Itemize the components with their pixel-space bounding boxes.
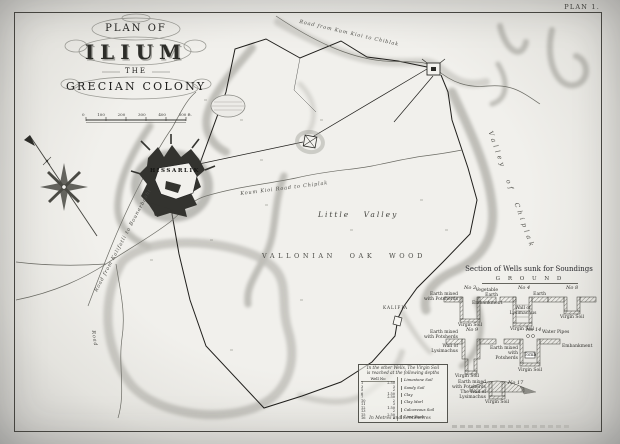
well-8-earth: Earth [524,292,546,297]
well-17-virgin-soil: Virgin Soil [482,400,512,405]
soil-type: Limestone Soil [401,378,445,382]
title-line-3: THE [66,67,206,75]
label-vallonian-oak-wood: VALLONIAN OAK WOOD [262,252,426,260]
well-14-embankment: Embankment [562,344,594,349]
well-14-virgin-soil: Virgin Soil [516,368,544,373]
title-line-1: PLAN OF [66,23,206,34]
label-kalifia: KALIFIA [383,305,408,310]
scale-tick-label: 100 [97,112,105,117]
soil-type: Calcareous Soil [401,408,445,412]
wells-ground-label: G R O U N D [482,276,578,284]
well-2-strata-label: Earth mixed with Potsherds [420,292,458,302]
well-no-17: No 17 [508,380,523,386]
depth-table-header: is reached at the following depths [361,371,445,376]
plate-border [14,12,602,432]
plate-number: PLAN 1. [564,3,600,11]
well-4-virgin-soil: Virgin Soil [508,327,536,332]
well-4-wall-label: Wall of Lysimachus [506,306,540,316]
scale-tick-label: 0 [82,112,85,117]
well-17-wall-label: The Wall of Lysimachus [446,390,486,400]
soil-type: Sandy Soil [401,386,445,390]
well-4-strata-label: Vegetable Earth [468,288,498,298]
well-8-virgin-soil: Virgin Soil [558,315,586,320]
soil-type: Clay [401,393,445,397]
wells-panel-heading: Section of Wells sunk for Soundings [450,265,608,273]
well-14-water-pipes: Water Pipes [542,330,572,335]
well-9-virgin-soil: Virgin Soil [452,374,482,379]
well-2-virgin-soil: Virgin Soil [456,323,484,328]
scale-tick-label: 400 [158,112,166,117]
label-hissarlik: HISSARLIK [150,168,200,174]
well-9-wall-label: Wall of Lysimachus [424,344,458,354]
well-4-embankment: Embankment [472,301,498,306]
depth-table-footnote: In Metres and Centimetres [358,416,442,421]
well-14-strata-label: Earth mixed with Potsherds [486,346,518,361]
soil-type: Clay Marl [401,400,445,404]
depth-table: In the other Wells, The Virgin Soil is r… [358,364,448,423]
scale-tick-label: 200 [118,112,126,117]
page-title: ILIUM [66,40,206,64]
label-little-valley: Little Valley [318,210,398,219]
well-no-4: No 4 [518,285,530,291]
scale-tick-label: 300 [138,112,146,117]
well-14-tomb: Tomb [520,353,540,358]
well-9-strata-label: Earth mixed with Potsherds [422,330,458,340]
well-17-strata-label: Earth mixed with Potsherds [448,380,486,390]
scale-tick-label: 500 ft. [179,112,192,117]
scale-bar-labels: 0 100 200 300 400 500 ft. [82,112,192,117]
map-plate: PLAN 1. PLAN OF ILIUM THE GRECIAN COLONY… [0,0,620,444]
well-no-8: No 8 [566,285,578,291]
title-line-4: GRECIAN COLONY [66,80,206,93]
printer-imprint [452,425,572,428]
